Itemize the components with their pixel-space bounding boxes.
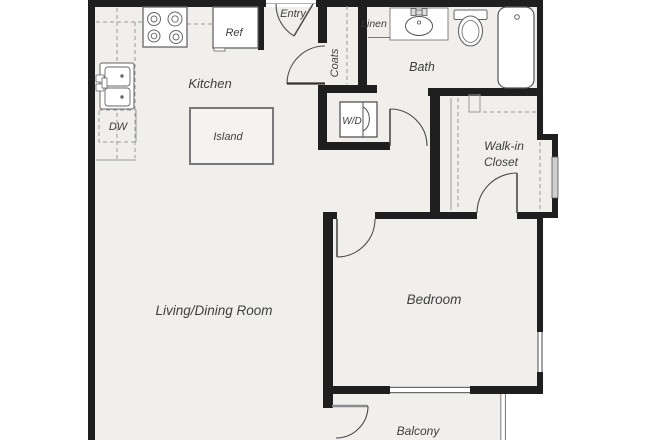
room-label-linen: Linen	[361, 18, 387, 30]
wall-left	[88, 0, 95, 440]
room-label-coats: Coats	[329, 48, 341, 77]
kitchen-sink	[96, 63, 134, 109]
wall-right-mid	[537, 212, 543, 332]
floor-plan-canvas: Entry Kitchen Ref DW Island Coats Linen …	[0, 0, 650, 440]
burner-icon	[172, 16, 178, 22]
floor-main	[95, 7, 540, 394]
room-label-entry: Entry	[280, 8, 307, 20]
wall-coats-left	[318, 0, 327, 43]
toilet-bowl-inner	[462, 21, 479, 43]
room-label-bedroom: Bedroom	[407, 292, 462, 307]
wall-kitchen-entry	[258, 0, 264, 50]
faucet-icon	[422, 9, 427, 16]
walk-in-closet-line2: Closet	[484, 155, 519, 169]
burner-icon	[173, 34, 179, 40]
bath-sink-basin	[406, 17, 433, 36]
wall-bedroom-left	[323, 212, 333, 408]
walk-in-closet-line1: Walk-in	[484, 139, 524, 153]
bathtub	[498, 7, 534, 88]
fixture-label-refrigerator: Ref	[225, 27, 243, 39]
room-label-kitchen: Kitchen	[188, 76, 231, 91]
wall-bedroom-top	[375, 212, 477, 219]
bathtub-drain-icon	[515, 15, 520, 20]
refrigerator-notch	[214, 48, 225, 51]
sink-basin	[105, 67, 130, 86]
bath-sink-drain-icon	[417, 21, 420, 24]
wall-coats-right	[358, 0, 367, 88]
wall-bedroom-bottom-left	[323, 386, 390, 394]
room-label-living-dining: Living/Dining Room	[155, 303, 272, 318]
sink-basin	[105, 88, 130, 106]
closet-bay-window	[552, 157, 558, 198]
burner-icon	[151, 33, 157, 39]
wall-top-right	[316, 0, 543, 7]
faucet-icon	[102, 78, 107, 88]
wall-bedroom-bottom-right	[470, 386, 543, 394]
wall-hall-closet-divider	[430, 88, 440, 219]
stove	[143, 7, 187, 47]
fixture-label-island: Island	[213, 131, 243, 143]
sink-drain-icon	[120, 74, 123, 77]
wall-closet-door-stub	[517, 212, 543, 219]
room-label-bath: Bath	[409, 60, 435, 74]
faucet-icon	[416, 10, 422, 15]
wall-bath-bottom	[428, 88, 537, 96]
fixture-label-washer-dryer: W/D	[342, 116, 361, 127]
fixture-label-dishwasher: DW	[109, 121, 129, 133]
wall-laundry-bottom	[318, 142, 390, 150]
sink-drain-icon	[120, 95, 123, 98]
faucet-icon	[411, 9, 416, 16]
burner-icon	[151, 16, 157, 22]
wall-top-left	[88, 0, 266, 7]
room-label-balcony: Balcony	[397, 424, 441, 438]
floor-living-bottom	[95, 386, 332, 440]
floor-closet-bay	[540, 140, 552, 212]
wall-right-upper	[537, 0, 543, 140]
wall-laundry-left	[318, 85, 327, 150]
